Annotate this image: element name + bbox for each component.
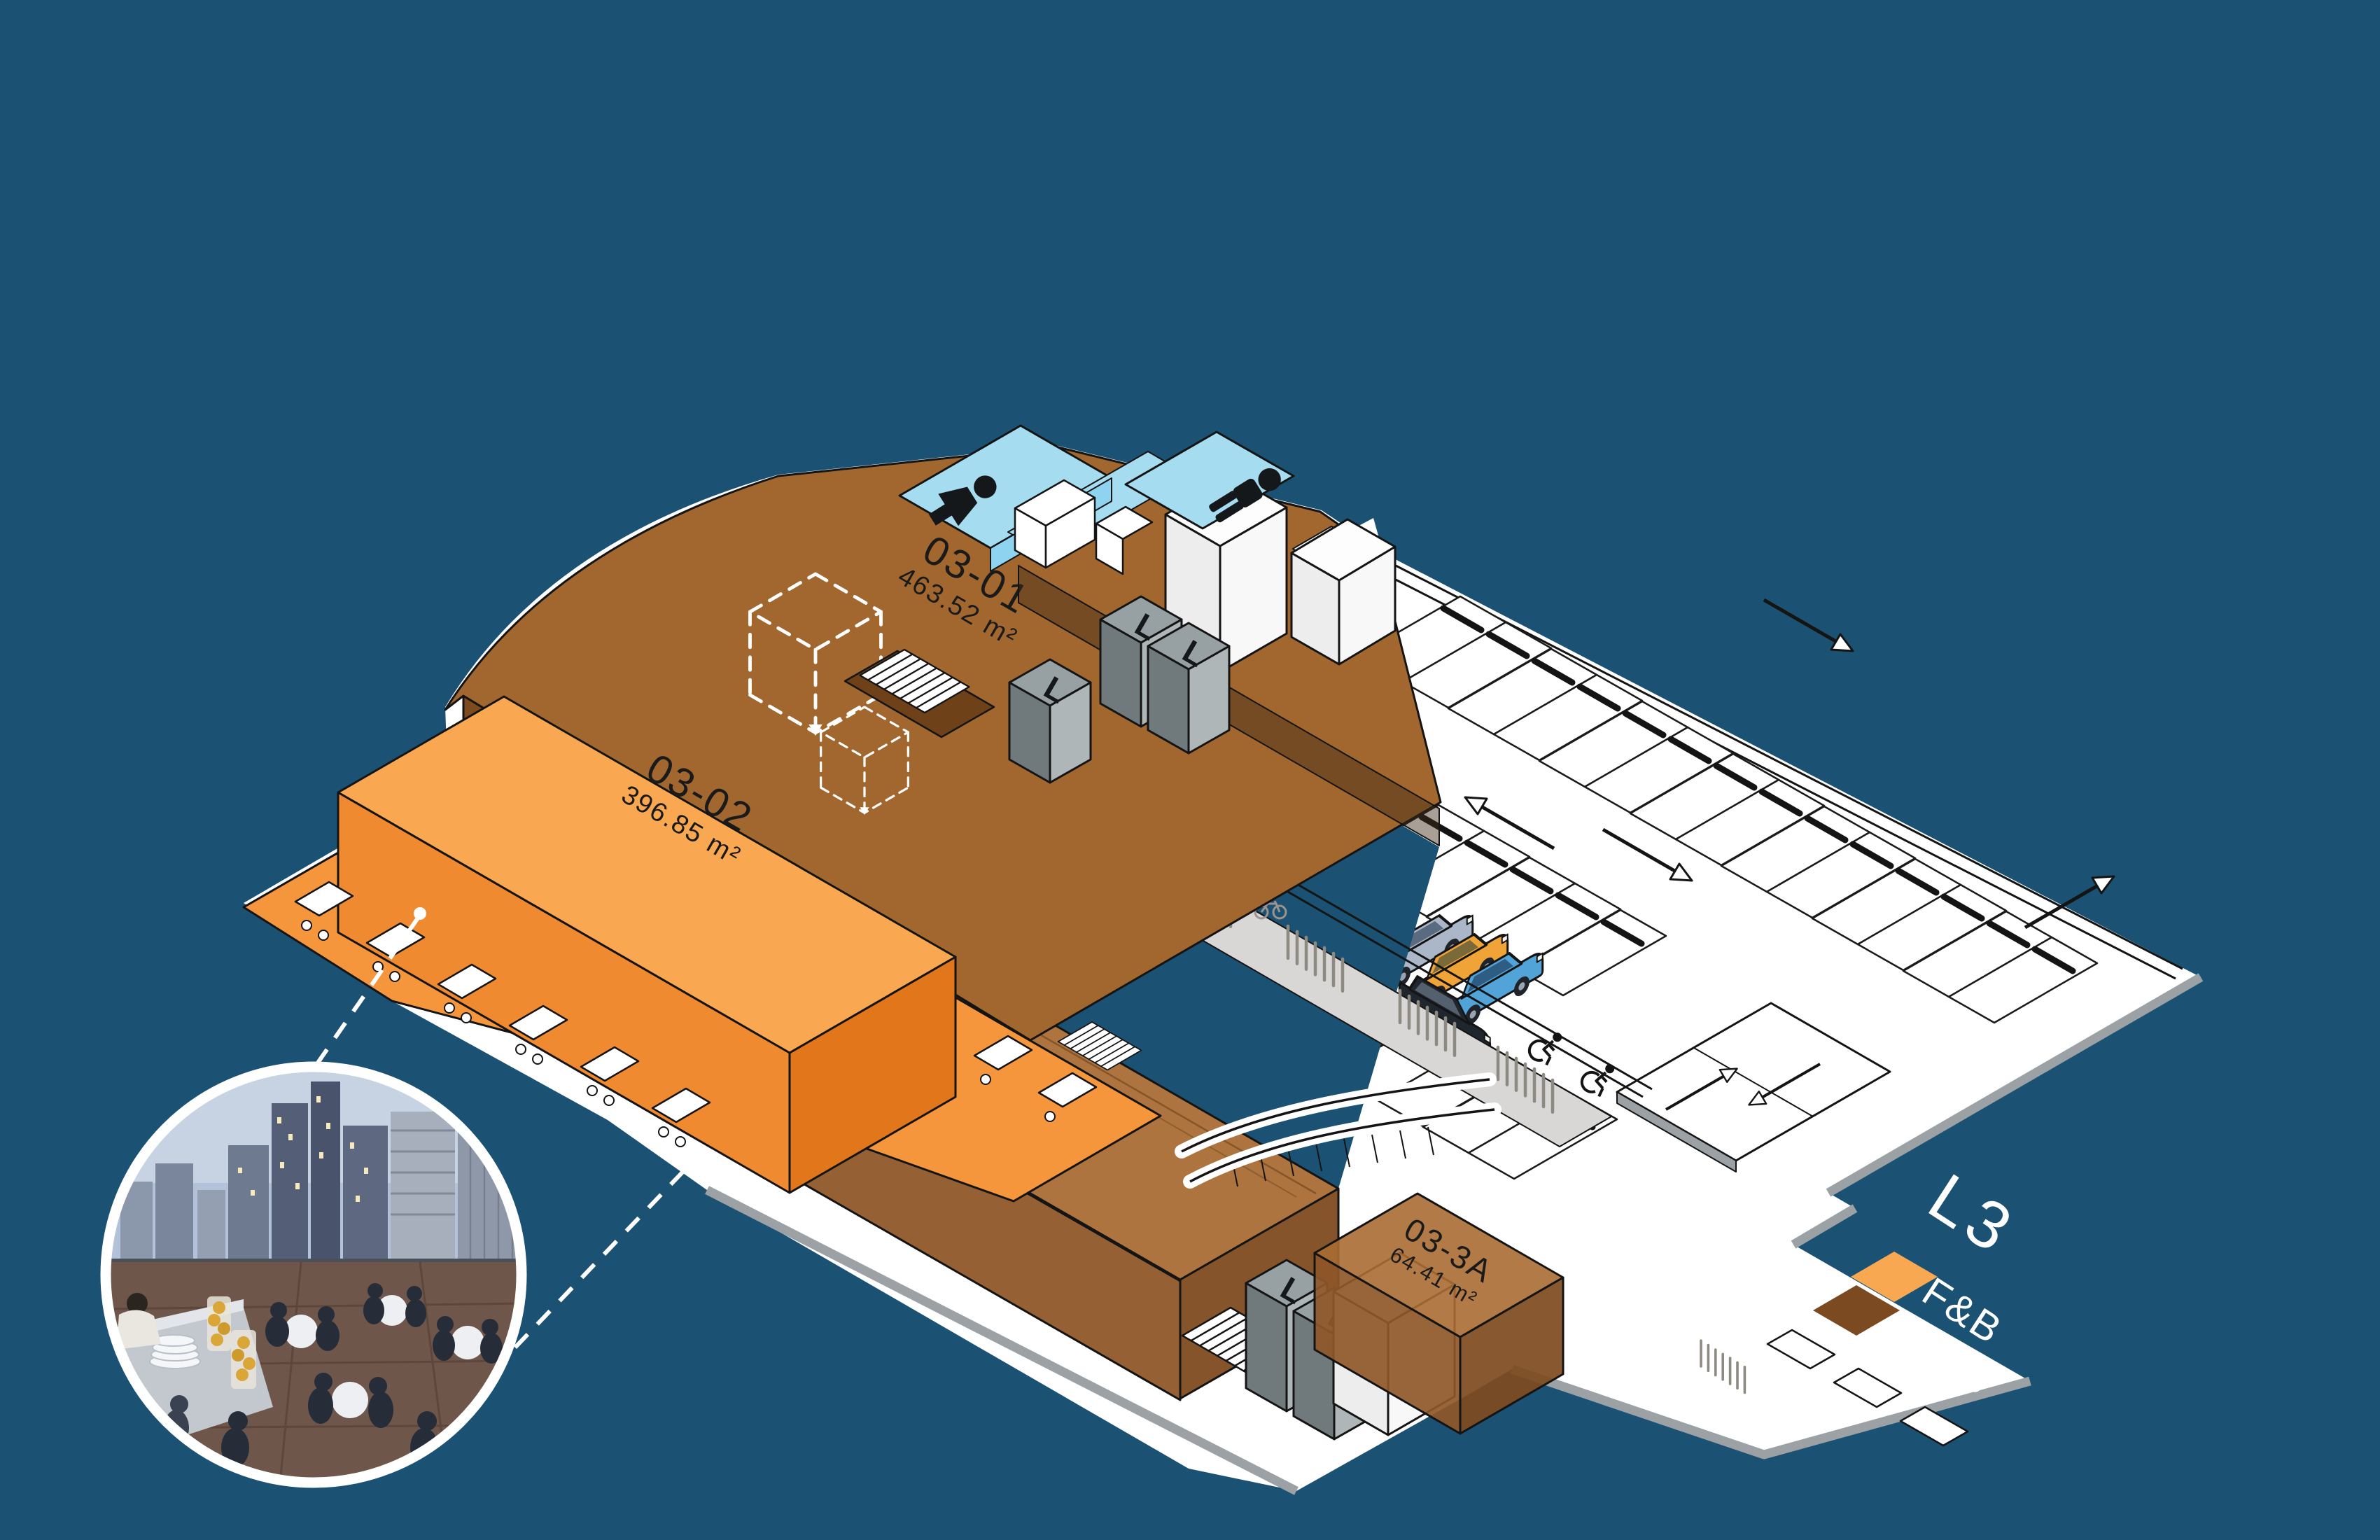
fnb-photo-inset [106, 1067, 521, 1486]
floorplan-poster: 03-03 356.66 m² L [0, 0, 2380, 1540]
elevator: L [1148, 623, 1229, 753]
lemon-jar [231, 1330, 256, 1389]
elevator: L [1009, 659, 1091, 783]
lemon-jar [207, 1296, 231, 1351]
leader-origin-dot [414, 907, 426, 920]
